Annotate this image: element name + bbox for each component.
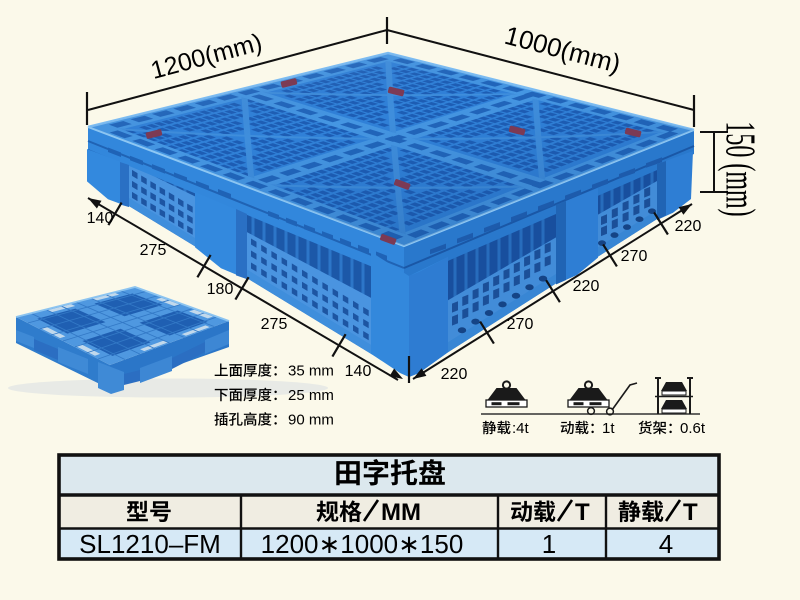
svg-text:180: 180 [207,281,234,298]
svg-text:T: T [683,499,698,526]
svg-text:1200∗1000∗150: 1200∗1000∗150 [261,529,464,559]
svg-text:4: 4 [659,529,673,559]
svg-text:275: 275 [261,316,288,333]
svg-text:1: 1 [542,529,556,559]
svg-text:25 mm: 25 mm [288,387,334,404]
svg-text::4t: :4t [512,420,530,437]
svg-text:90 mm: 90 mm [288,412,334,429]
svg-text:220: 220 [573,278,600,295]
svg-text:220: 220 [441,366,468,383]
svg-text:SL1210–FM: SL1210–FM [79,529,221,559]
svg-text:1t: 1t [602,420,615,437]
svg-text:MM: MM [381,499,421,526]
svg-text:T: T [575,499,590,526]
svg-text:220: 220 [675,218,702,235]
svg-text:270: 270 [507,316,534,333]
svg-text:270: 270 [621,248,648,265]
svg-text:0.6t: 0.6t [680,420,706,437]
svg-text:140: 140 [345,363,372,380]
svg-text:35 mm: 35 mm [288,363,334,380]
svg-text:275: 275 [140,242,167,259]
svg-text:150 (mm): 150 (mm) [717,121,762,216]
svg-text:140: 140 [87,210,114,227]
